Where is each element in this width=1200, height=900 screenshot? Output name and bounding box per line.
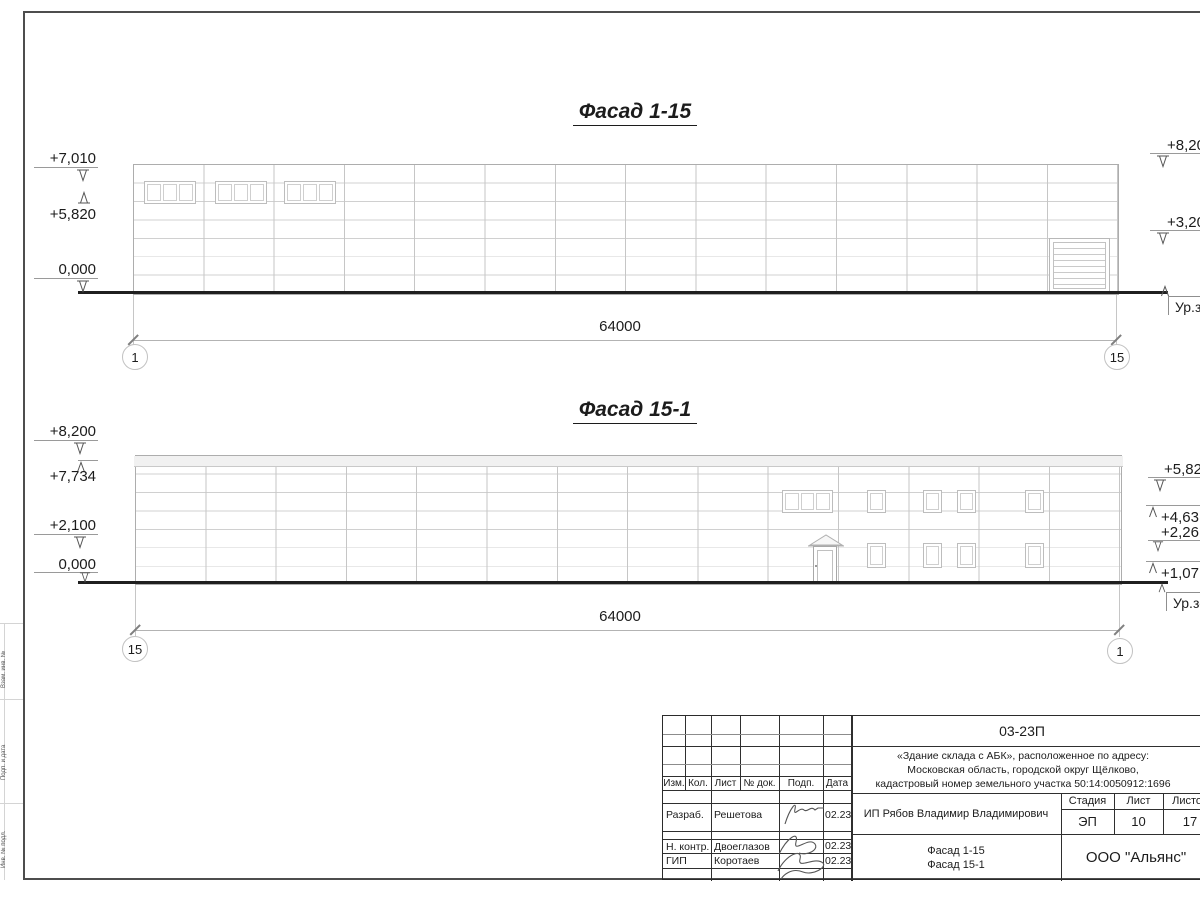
stamp-line xyxy=(663,734,851,735)
margin-label: Инв. № подл. xyxy=(1,831,7,868)
elevation-mark-text: +8,20 xyxy=(1167,137,1200,154)
stage-label: Стадия xyxy=(1061,793,1114,809)
row-name: Решетова xyxy=(714,809,762,821)
dimension-value: 64000 xyxy=(520,318,720,335)
door-pediment xyxy=(807,533,845,547)
row-role: Н. контр. xyxy=(666,841,709,853)
elevation-arrow-down-icon xyxy=(76,169,90,182)
elevation-shelf xyxy=(1148,477,1200,478)
row-role: Разраб. xyxy=(666,809,704,821)
window-pane xyxy=(801,493,815,510)
elevation-shelf xyxy=(1150,230,1200,231)
entrance-door xyxy=(813,546,837,583)
elevation-shelf xyxy=(1150,153,1200,154)
elevation-arrow-down-icon xyxy=(78,572,92,583)
stage-value: ЭП xyxy=(1061,809,1114,834)
axis-bubble-1: 1 xyxy=(1107,638,1133,664)
window xyxy=(1025,490,1044,513)
facade-1-15-elevation xyxy=(133,164,1119,295)
ground-level-label: Ур.зе xyxy=(1166,592,1200,611)
roller-gate-slats xyxy=(1053,242,1106,289)
facade-15-1-elevation xyxy=(135,455,1122,585)
col-data: Дата xyxy=(823,776,851,790)
window-pane xyxy=(960,546,973,565)
ground-line xyxy=(78,291,1168,294)
window-band xyxy=(215,181,267,204)
col-kol: Кол. xyxy=(685,776,711,790)
window-pane xyxy=(870,493,883,510)
title-block: Изм. Кол. Лист № док. Подп. Дата Разраб.… xyxy=(662,715,1200,880)
elevation-mark-text: +1,07 xyxy=(1161,565,1199,582)
col-list: Лист xyxy=(711,776,740,790)
col-ndok: № док. xyxy=(740,776,779,790)
axis-label: 15 xyxy=(1110,350,1124,365)
frame-top xyxy=(23,11,1200,13)
dimension-value: 64000 xyxy=(520,608,720,625)
margin-divider xyxy=(0,803,23,804)
window-pane xyxy=(287,184,301,201)
elevation-mark-text: +3,20 xyxy=(1167,214,1200,231)
elevation-mark-text: +7,010 xyxy=(30,150,96,167)
elevation-arrow-up-icon xyxy=(77,191,91,204)
axis-bubble-15: 15 xyxy=(122,636,148,662)
elevation-arrow-down-icon xyxy=(1156,232,1170,245)
sheet-label: Лист xyxy=(1114,793,1163,809)
stamp-line xyxy=(663,790,851,791)
facade-1-15-title: Фасад 1-15 xyxy=(573,100,697,126)
elevation-arrow-up-icon xyxy=(1146,562,1160,574)
margin-divider xyxy=(0,699,23,700)
stamp-line xyxy=(851,746,1200,747)
window-pane xyxy=(1028,493,1041,510)
window-pane xyxy=(250,184,264,201)
elevation-arrow-down-icon xyxy=(73,536,87,549)
window-band xyxy=(782,490,833,513)
row-role: ГИП xyxy=(666,855,687,867)
window xyxy=(923,490,942,513)
stamp-line xyxy=(663,764,851,765)
axis-bubble-1: 1 xyxy=(122,344,148,370)
roller-gate xyxy=(1049,238,1110,292)
ground-level-text: Ур.зе xyxy=(1175,299,1200,315)
facade-15-1: Фасад 15-1 xyxy=(440,398,830,422)
window-pane xyxy=(218,184,232,201)
window-band xyxy=(144,181,196,204)
project-description-line: Московская область, городской округ Щёлк… xyxy=(853,763,1193,777)
facade-15-1-title: Фасад 15-1 xyxy=(573,398,697,424)
client-name: ИП Рябов Владимир Владимирович xyxy=(851,793,1061,834)
elevation-shelf xyxy=(34,278,98,279)
dimension-line xyxy=(133,340,1117,341)
elevation-arrow-down-icon xyxy=(1153,479,1167,492)
project-description-line: кадастровый номер земельного участка 50:… xyxy=(853,777,1193,791)
elevation-mark-text: +2,26 xyxy=(1161,524,1199,541)
window-pane xyxy=(1028,546,1041,565)
elevation-mark-text: +2,100 xyxy=(30,517,96,534)
margin-divider xyxy=(0,623,23,624)
elevation-arrow-down-icon xyxy=(76,280,90,293)
dimension-line xyxy=(135,630,1120,631)
window xyxy=(957,543,976,568)
stamp-line xyxy=(711,716,712,881)
window-pane xyxy=(303,184,317,201)
sheets-label: Листов xyxy=(1163,793,1200,809)
row-name: Коротаев xyxy=(714,855,759,867)
signature xyxy=(773,826,833,881)
facade-1-15: Фасад 1-15 xyxy=(440,100,830,124)
elevation-arrow-down-icon xyxy=(1151,541,1165,552)
margin-label: Подп. и дата xyxy=(1,745,7,780)
window-pane xyxy=(960,493,973,510)
window xyxy=(957,490,976,513)
project-description-line: «Здание склада с АБК», расположенное по … xyxy=(853,749,1193,763)
window-pane xyxy=(163,184,177,201)
sheet-content-line: Фасад 15-1 xyxy=(851,858,1061,872)
window-pane xyxy=(816,493,830,510)
axis-label: 1 xyxy=(1116,644,1123,659)
organization-name: ООО "Альянс" xyxy=(1061,834,1200,881)
window-band xyxy=(284,181,336,204)
project-code: 03-23П xyxy=(851,716,1193,746)
frame-left xyxy=(23,11,25,880)
window xyxy=(923,543,942,568)
sheet-content-line: Фасад 1-15 xyxy=(851,844,1061,858)
sheets-total: 17 xyxy=(1163,809,1200,834)
elevation-mark-text: +5,820 xyxy=(30,206,96,223)
stamp-line xyxy=(663,746,851,747)
window xyxy=(1025,543,1044,568)
window-pane xyxy=(870,546,883,565)
window-pane xyxy=(147,184,161,201)
row-name: Двоеглазов xyxy=(714,841,770,853)
window xyxy=(867,490,886,513)
margin-label: Взам. инв. № xyxy=(1,651,7,688)
elevation-mark-text: 0,000 xyxy=(30,261,96,278)
window-pane xyxy=(234,184,248,201)
window xyxy=(867,543,886,568)
ground-level-text: Ур.зе xyxy=(1173,595,1200,611)
ground-line xyxy=(78,581,1168,584)
ground-level-label: Ур.зе xyxy=(1168,296,1200,315)
window-pane xyxy=(319,184,333,201)
col-izm: Изм. xyxy=(663,776,685,790)
axis-label: 15 xyxy=(128,642,142,657)
elevation-arrow-up-icon xyxy=(1146,506,1160,518)
project-description: «Здание склада с АБК», расположенное по … xyxy=(853,749,1193,791)
window-pane xyxy=(179,184,193,201)
window-pane xyxy=(926,546,939,565)
elevation-mark-text: +8,200 xyxy=(30,423,96,440)
elevation-shelf xyxy=(34,167,98,168)
sheet-number: 10 xyxy=(1114,809,1163,834)
elevation-arrow-down-icon xyxy=(1156,155,1170,168)
window-pane xyxy=(785,493,799,510)
elevation-arrow-down-icon xyxy=(73,442,87,455)
elevation-shelf xyxy=(34,440,98,441)
row-date: 02.23 xyxy=(825,809,851,821)
elevation-mark-text: +7,734 xyxy=(30,468,96,485)
elevation-shelf xyxy=(34,534,98,535)
col-podp: Подп. xyxy=(779,776,823,790)
sheet-content: Фасад 1-15 Фасад 15-1 xyxy=(851,844,1061,872)
elevation-mark-text: 0,000 xyxy=(30,556,96,573)
axis-label: 1 xyxy=(131,350,138,365)
parapet-band xyxy=(134,456,1123,467)
door-leaf xyxy=(817,550,833,582)
door-handle xyxy=(815,565,817,567)
window-pane xyxy=(926,493,939,510)
elevation-mark-text: +5,82 xyxy=(1164,461,1200,478)
axis-bubble-15: 15 xyxy=(1104,344,1130,370)
signature xyxy=(781,796,825,830)
drawing-sheet: Взам. инв. № Подп. и дата Инв. № подл. Ф… xyxy=(0,0,1200,900)
